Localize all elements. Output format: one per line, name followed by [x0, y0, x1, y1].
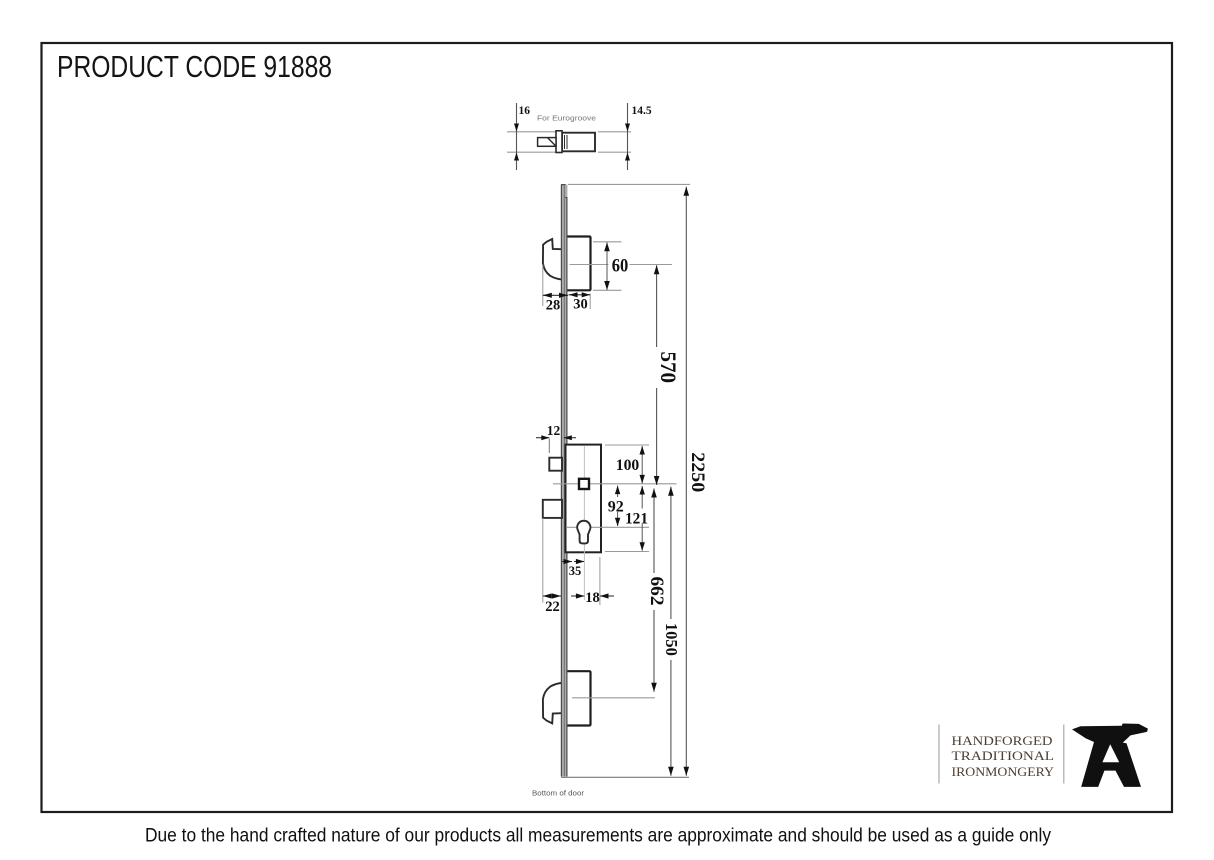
svg-text:92: 92 [608, 498, 624, 515]
svg-text:18: 18 [585, 590, 600, 606]
svg-text:30: 30 [573, 297, 588, 313]
svg-text:662: 662 [646, 577, 667, 606]
svg-text:2250: 2250 [687, 452, 707, 492]
svg-text:16: 16 [519, 105, 531, 117]
svg-text:HANDFORGED: HANDFORGED [952, 734, 1053, 748]
svg-text:100: 100 [616, 455, 640, 474]
svg-text:60: 60 [612, 257, 629, 277]
svg-text:12: 12 [547, 423, 561, 438]
svg-text:IRONMONGERY: IRONMONGERY [952, 765, 1055, 779]
svg-text:28: 28 [546, 298, 561, 314]
svg-text:TRADITIONAL: TRADITIONAL [952, 749, 1055, 763]
svg-text:121: 121 [625, 510, 648, 527]
svg-text:570: 570 [656, 352, 681, 384]
svg-text:PRODUCT CODE 91888: PRODUCT CODE 91888 [57, 50, 332, 84]
svg-text:35: 35 [569, 564, 582, 578]
svg-text:22: 22 [545, 599, 560, 615]
svg-text:1050: 1050 [662, 623, 681, 656]
svg-text:Due to the hand crafted nature: Due to the hand crafted nature of our pr… [145, 825, 1051, 847]
svg-text:For Eurogroove: For Eurogroove [537, 114, 596, 123]
svg-text:14.5: 14.5 [632, 105, 652, 117]
svg-text:Bottom of door: Bottom of door [532, 789, 585, 798]
